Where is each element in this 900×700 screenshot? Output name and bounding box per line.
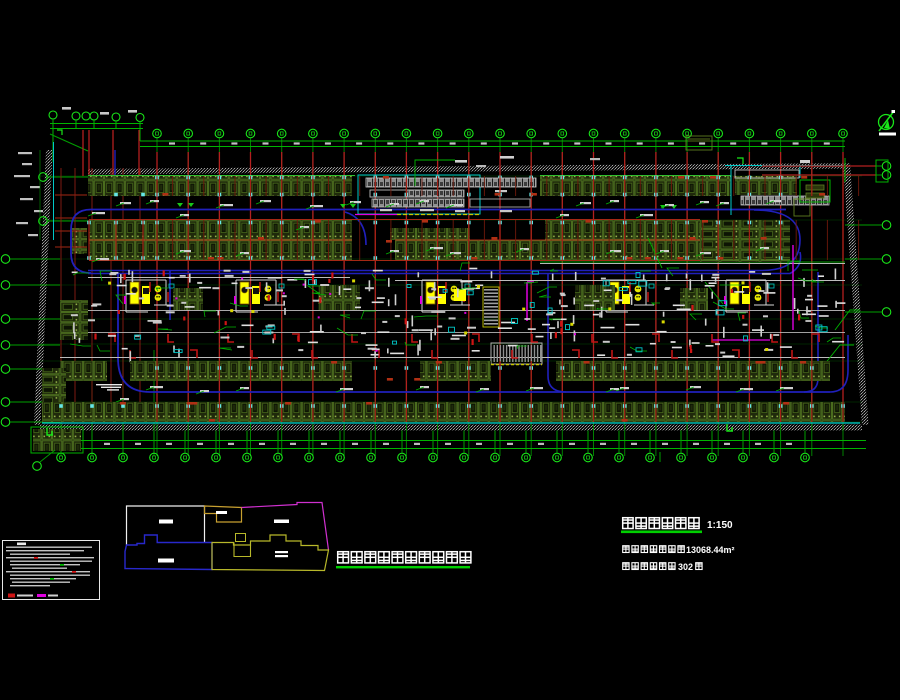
svg-text:13068.44m²: 13068.44m² <box>686 545 735 555</box>
svg-text:302: 302 <box>678 562 693 572</box>
svg-text:1:150: 1:150 <box>707 520 733 531</box>
